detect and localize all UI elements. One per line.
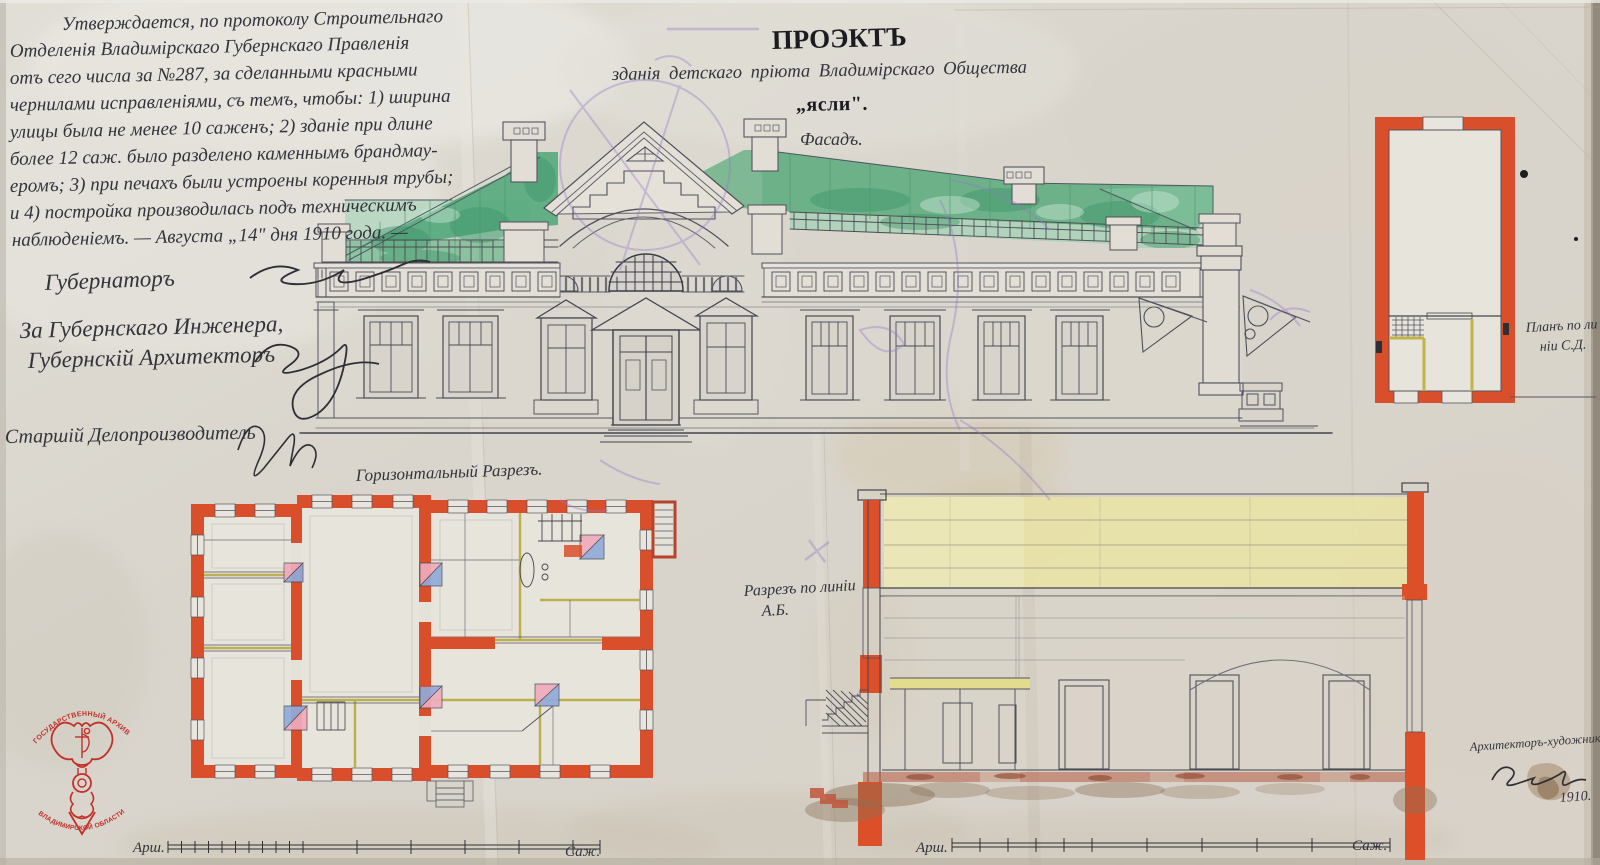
svg-text:„ясли".: „ясли". — [796, 93, 868, 116]
svg-text:1910.: 1910. — [1559, 789, 1591, 806]
svg-text:Фасадъ.: Фасадъ. — [800, 129, 863, 149]
svg-text:ПРОЭКТЪ: ПРОЭКТЪ — [771, 21, 907, 55]
svg-text:А.Б.: А.Б. — [760, 602, 789, 620]
svg-text:Арш.: Арш. — [132, 840, 165, 856]
svg-text:Губернаторъ: Губернаторъ — [43, 265, 175, 295]
svg-text:Старшій Делопроизводитель: Старшій Делопроизводитель — [5, 422, 256, 448]
svg-text:Арш.: Арш. — [915, 840, 948, 856]
svg-text:Саж.: Саж. — [1352, 838, 1387, 854]
svg-text:ніи С.Д.: ніи С.Д. — [1539, 338, 1586, 355]
svg-text:Саж.: Саж. — [565, 844, 600, 860]
